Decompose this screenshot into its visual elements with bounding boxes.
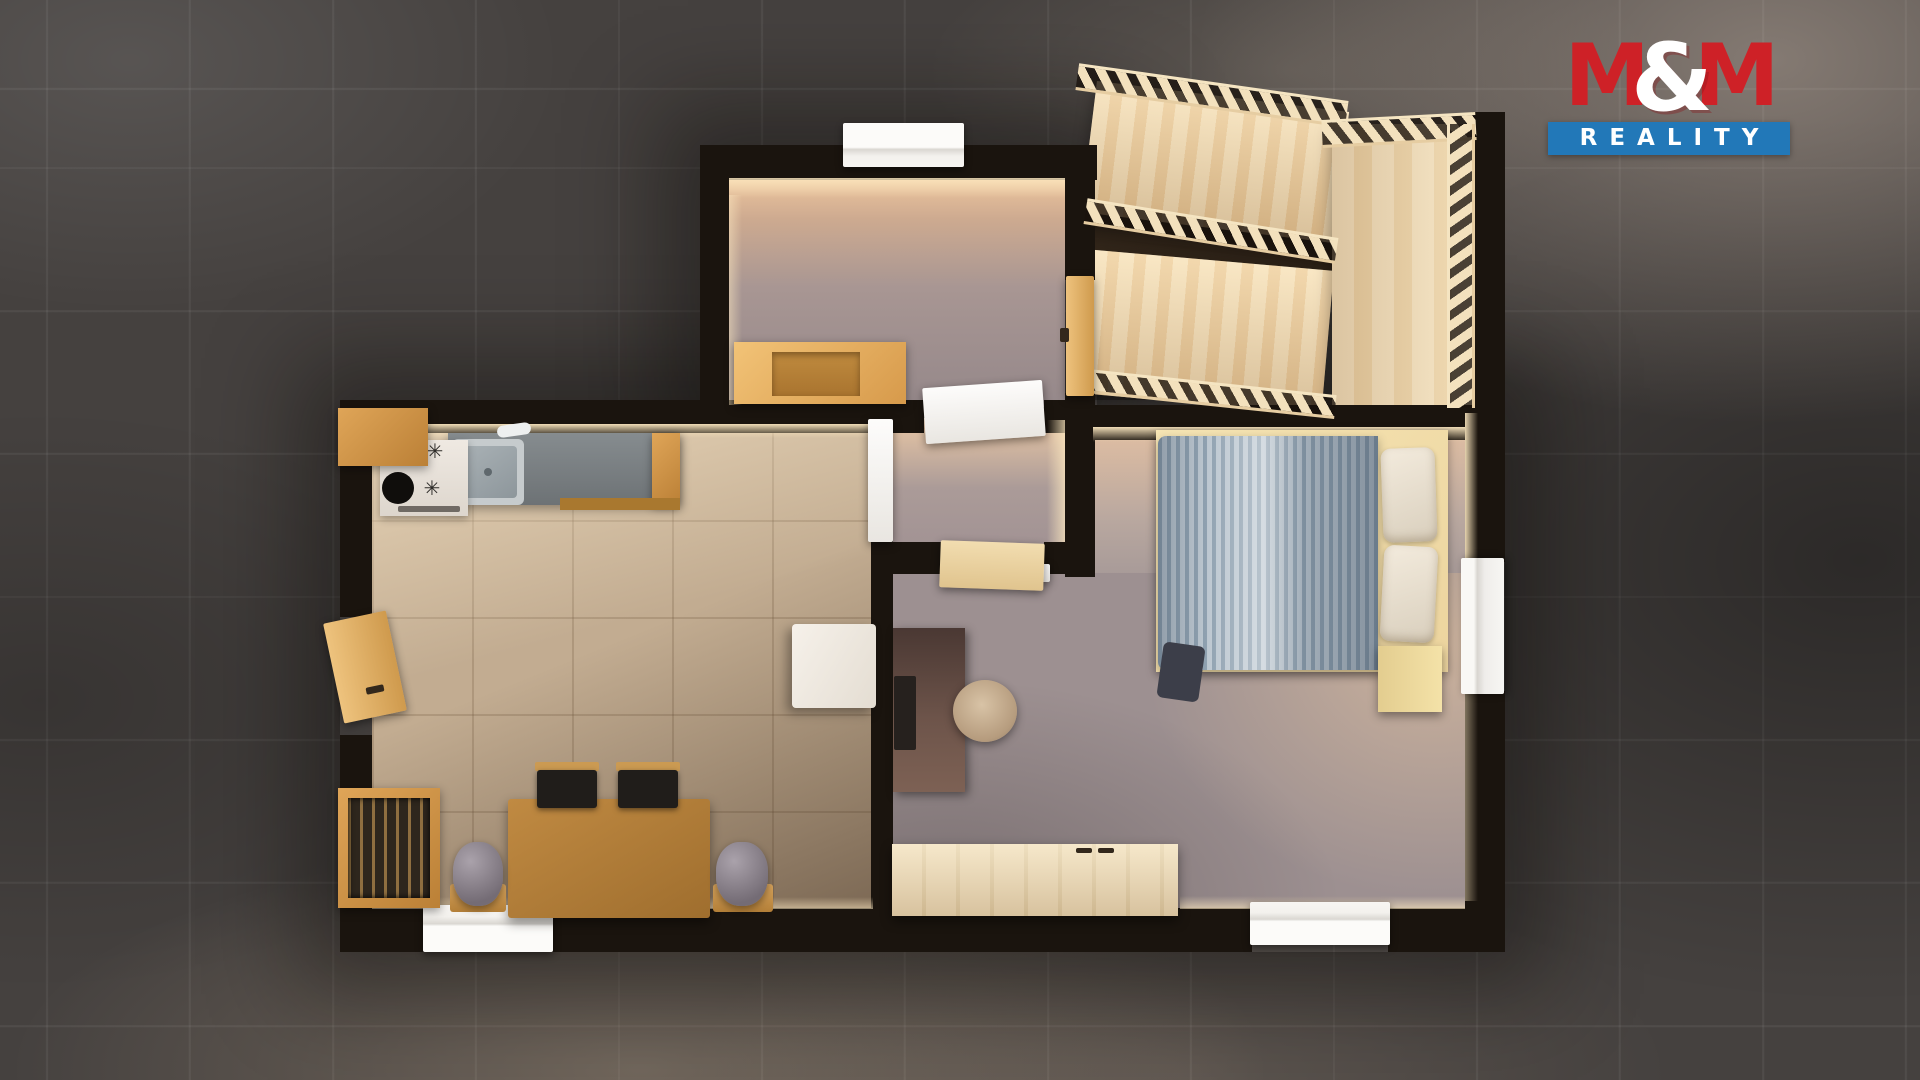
wall-living-bottom-left — [340, 908, 425, 952]
kitchen-drawer-front — [560, 498, 680, 510]
dining-chair-2 — [618, 770, 678, 808]
wall-glow-entry-top — [729, 178, 1065, 198]
door-white-entry-hall — [922, 380, 1046, 444]
logo-mm-reality: M&M REALITY — [1548, 28, 1790, 155]
desk-monitor — [894, 676, 916, 750]
bed-blanket-fold — [1156, 641, 1205, 702]
window-bedroom-bottom — [1250, 902, 1390, 945]
office-chair — [953, 680, 1017, 742]
wall-glow-hall-right — [1047, 420, 1065, 542]
kitchen-counter-wood-end — [652, 433, 680, 505]
door-wood-staircase — [1066, 276, 1094, 396]
floorplan-render: ✳✳ M&M REALITY — [0, 0, 1920, 1080]
wall-glow-bedroom-right-upper — [1465, 413, 1478, 565]
sideboard-handle-1 — [1076, 848, 1092, 853]
wall-glow-bedroom-right-lower — [1465, 691, 1478, 901]
wall-staircase-right — [1472, 112, 1505, 408]
dining-chair-1 — [537, 770, 597, 808]
nightstand — [1378, 646, 1442, 712]
stove-burner-icon-2: ✳ — [420, 476, 444, 500]
logo-mm: M&M — [1548, 28, 1790, 120]
window-bedroom-right — [1461, 558, 1504, 694]
wall-bedroom-bottom-right — [1388, 908, 1505, 952]
door-handle-staircase — [1060, 328, 1069, 342]
stove-plate — [382, 472, 414, 504]
oven-vent-line — [398, 506, 460, 512]
door-wood-hall-bedroom — [939, 540, 1045, 591]
door-white-living-hall — [868, 419, 893, 542]
plant-pot-right — [716, 842, 768, 906]
sideboard-handle-2 — [1098, 848, 1114, 853]
wall-entry-left — [700, 145, 729, 407]
sideboard — [892, 844, 1178, 916]
stair-railing-landing-right — [1447, 124, 1475, 408]
kitchen-sink-drain — [484, 468, 492, 476]
bed-duvet — [1158, 436, 1378, 670]
dining-table — [508, 799, 710, 918]
wall-divider-lower — [871, 540, 893, 908]
entry-bench-seat — [772, 352, 860, 396]
kitchen-cabinet-corner — [338, 408, 428, 466]
logo-ampersand: & — [1631, 24, 1707, 133]
bed-pillow-top — [1380, 447, 1437, 543]
display-cabinet-glass — [348, 798, 430, 898]
window-entry-top — [843, 123, 964, 167]
plant-pot-left — [453, 842, 503, 906]
white-armchair — [792, 624, 876, 708]
bed-pillow-bottom — [1380, 545, 1439, 644]
wall-hall-bottom-left — [893, 542, 942, 574]
